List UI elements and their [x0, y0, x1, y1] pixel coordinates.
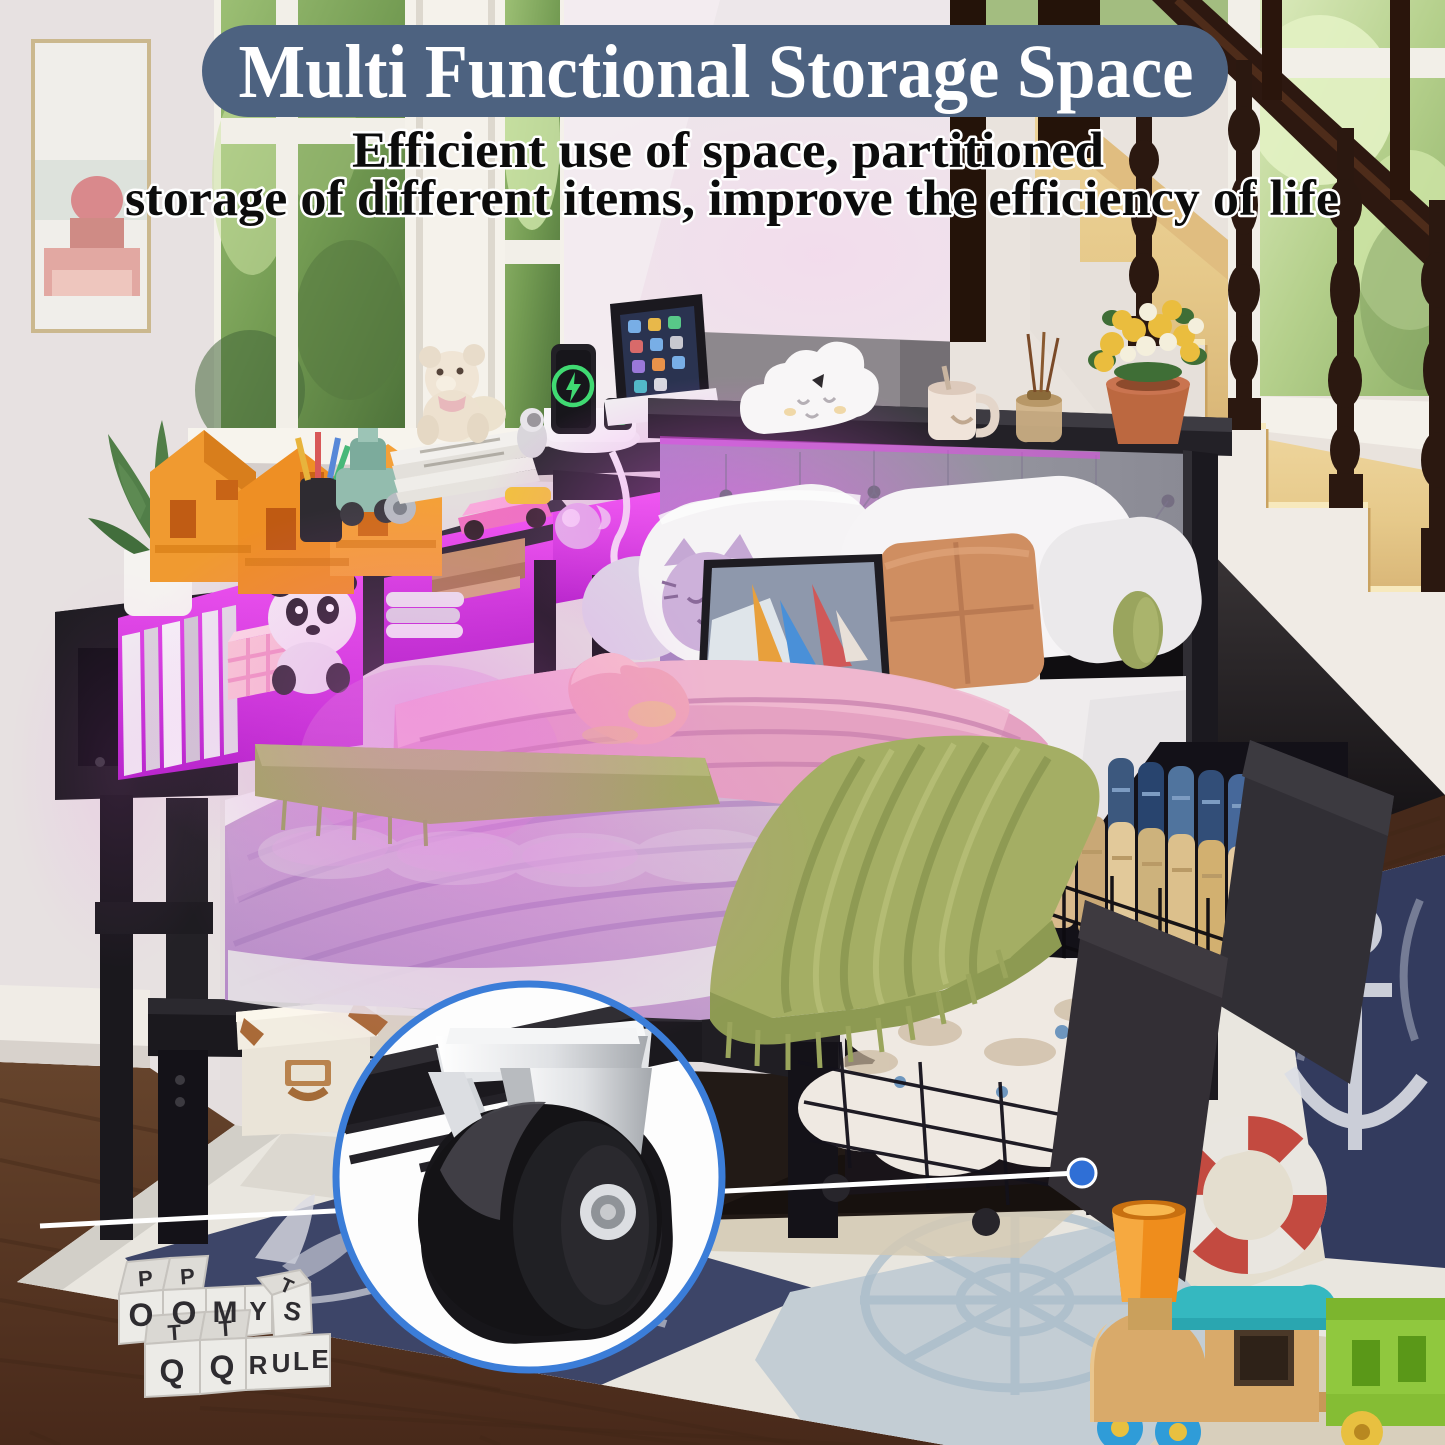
svg-text:U: U: [272, 1348, 291, 1378]
svg-text:Q: Q: [160, 1353, 185, 1389]
svg-text:E: E: [311, 1344, 328, 1374]
svg-text:Y: Y: [249, 1296, 266, 1326]
svg-text:T: T: [167, 1320, 183, 1346]
svg-text:Q: Q: [210, 1349, 235, 1385]
svg-text:P: P: [179, 1264, 195, 1290]
svg-text:P: P: [137, 1266, 153, 1292]
svg-text:Multi Functional Storage Space: Multi Functional Storage Space: [239, 30, 1194, 114]
svg-text:O: O: [129, 1297, 154, 1333]
svg-text:storage of different items, im: storage of different items, improve the …: [125, 171, 1339, 227]
svg-text:T: T: [218, 1316, 234, 1342]
svg-text:R: R: [249, 1350, 268, 1380]
svg-text:L: L: [293, 1346, 309, 1376]
